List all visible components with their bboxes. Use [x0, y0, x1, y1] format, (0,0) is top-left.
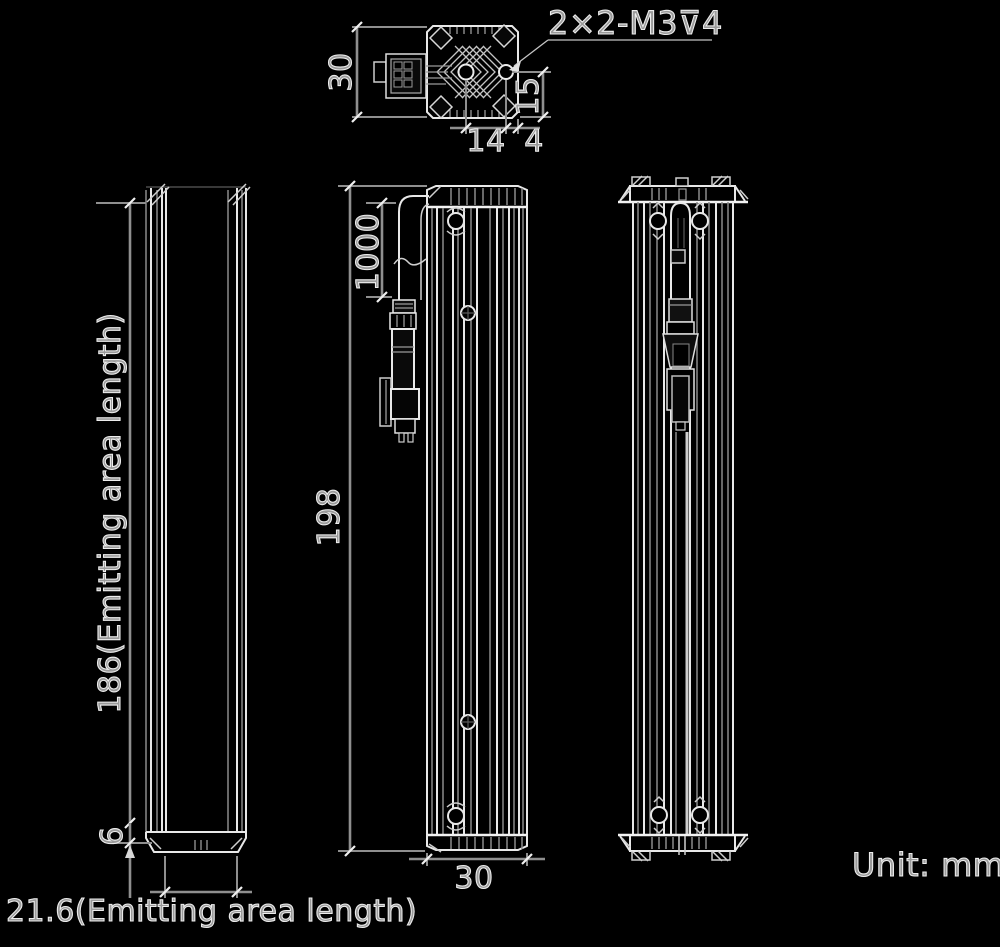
dim-label-top-height: 30: [324, 52, 359, 91]
dim-label-end-offset: 6: [95, 826, 130, 846]
dimension-drawing: 30 15 14 4 2×2-M3⊽4: [0, 0, 1000, 947]
unit-label: Unit: mm: [852, 846, 1000, 884]
mounting-hole-upper: [461, 306, 475, 320]
dim-label-emitting-width: 21.6(Emitting area length): [6, 894, 417, 929]
dim-label-total-length: 198: [312, 488, 347, 547]
dim-label-hole-spacing: 14: [466, 124, 505, 159]
cap-center-tab: [676, 178, 688, 186]
dim-label-cable-length: 1000: [351, 213, 386, 291]
dim-label-emitting-length: 186(Emitting area length): [93, 312, 128, 713]
dim-label-hole-to-bottom: 15: [511, 76, 546, 115]
dim-label-hole-to-edge: 4: [524, 124, 544, 159]
thread-callout-label: 2×2-M3⊽4: [548, 4, 723, 42]
tapped-hole-left: [459, 65, 474, 80]
mounting-hole-lower: [461, 715, 475, 729]
dim-label-front-width: 30: [454, 861, 493, 896]
cap-center-notch: [679, 189, 686, 200]
